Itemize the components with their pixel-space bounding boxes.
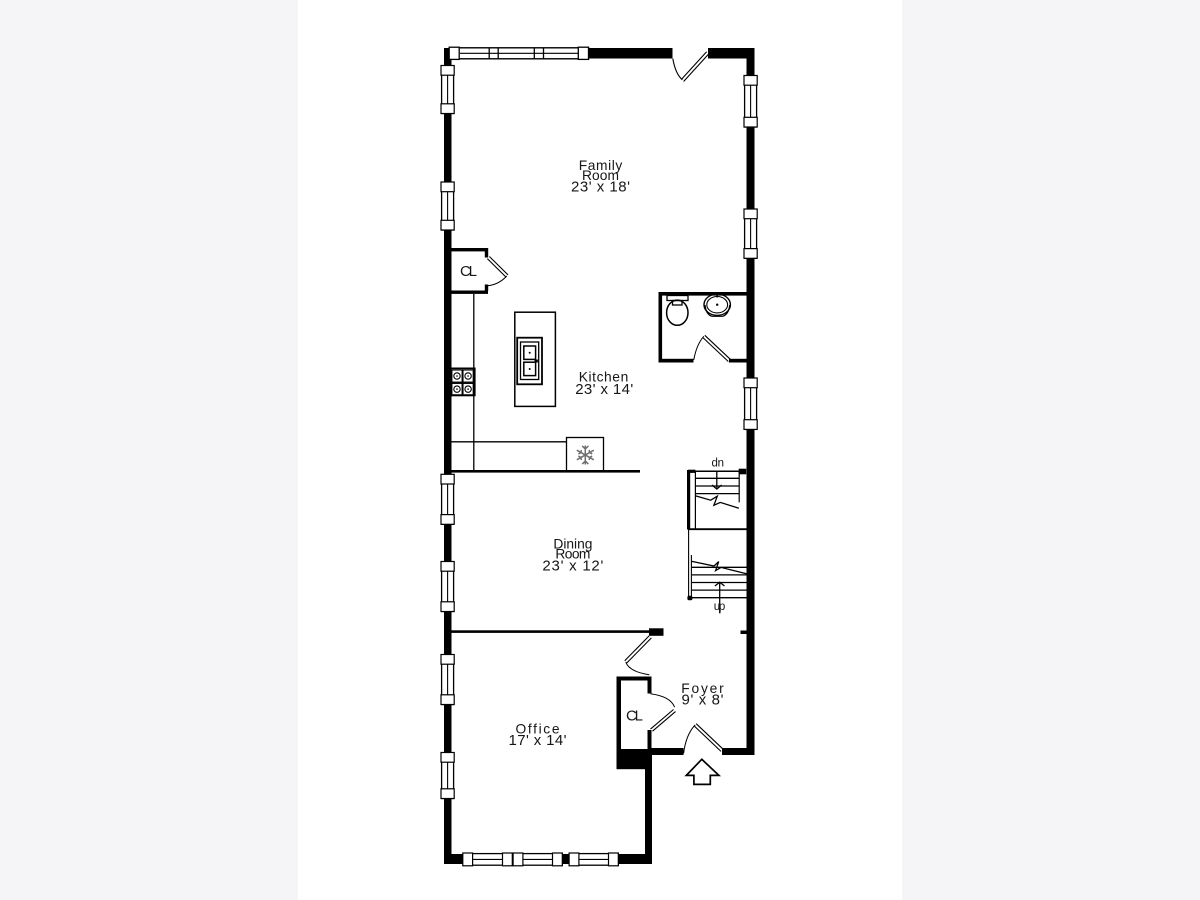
- svg-text:up: up: [714, 601, 726, 613]
- svg-text:CL: CL: [626, 707, 643, 724]
- svg-text:CL: CL: [460, 263, 477, 280]
- svg-text:17' x 14': 17' x 14': [509, 732, 567, 749]
- svg-text:23' x 12': 23' x 12': [542, 557, 603, 574]
- svg-text:dn: dn: [712, 457, 725, 469]
- svg-text:9' x 8': 9' x 8': [682, 692, 724, 709]
- svg-text:23' x 18': 23' x 18': [571, 178, 630, 195]
- svg-text:23' x 14': 23' x 14': [575, 381, 633, 398]
